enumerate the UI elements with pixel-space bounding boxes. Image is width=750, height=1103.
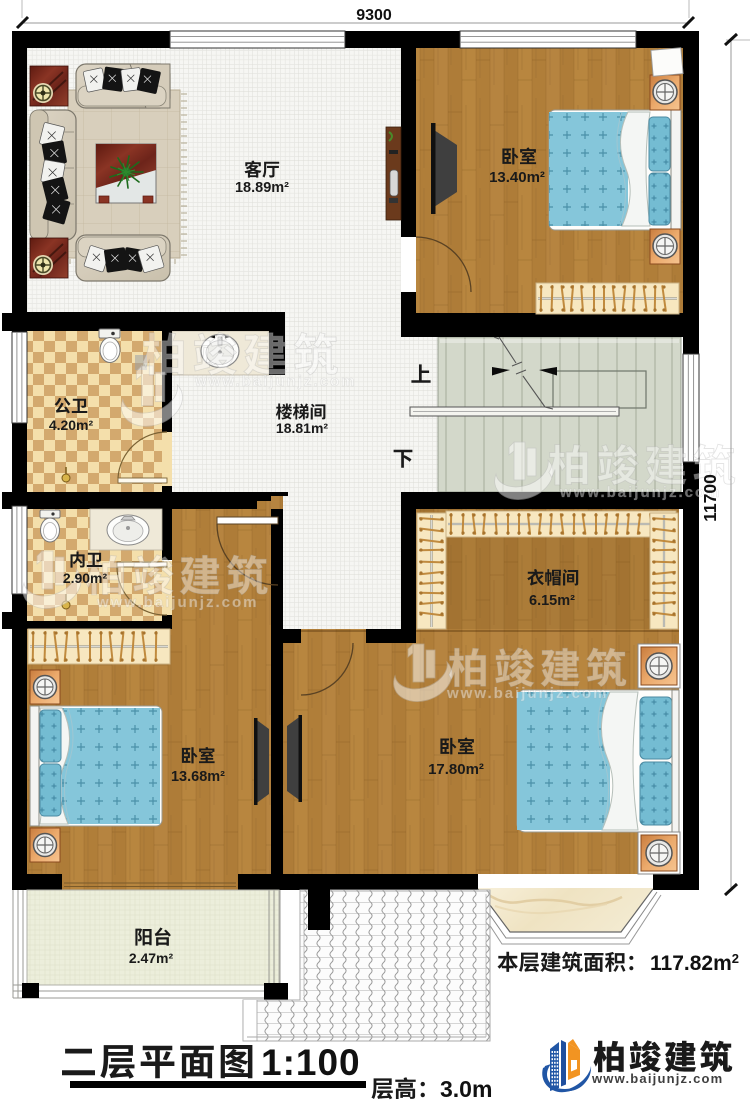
svg-text:117.82m2: 117.82m2 (650, 951, 739, 975)
svg-text:1:100: 1:100 (261, 1042, 361, 1083)
svg-text:17.80m²: 17.80m² (428, 761, 484, 778)
svg-text:2.47m²: 2.47m² (129, 950, 174, 966)
svg-text:9300: 9300 (356, 7, 392, 24)
svg-text:2.90m²: 2.90m² (63, 570, 108, 586)
svg-text:6.15m²: 6.15m² (529, 593, 575, 609)
svg-text:www.baijunjz.com: www.baijunjz.com (96, 594, 258, 611)
svg-text:www.baijunjz.com: www.baijunjz.com (446, 685, 608, 702)
svg-text:www.baijunjz.com: www.baijunjz.com (591, 1071, 723, 1086)
svg-text:www.baijunjz.com: www.baijunjz.com (194, 373, 356, 390)
svg-text:18.89m²: 18.89m² (235, 180, 289, 196)
svg-text:11700: 11700 (700, 474, 720, 522)
svg-text:13.68m²: 13.68m² (171, 769, 225, 785)
svg-text:18.81m²: 18.81m² (276, 420, 328, 436)
svg-text:3.0m: 3.0m (440, 1076, 492, 1102)
svg-text:13.40m²: 13.40m² (489, 169, 545, 186)
svg-text:4.20m²: 4.20m² (49, 417, 94, 433)
svg-text:www.baijunjz.com: www.baijunjz.com (559, 484, 721, 501)
